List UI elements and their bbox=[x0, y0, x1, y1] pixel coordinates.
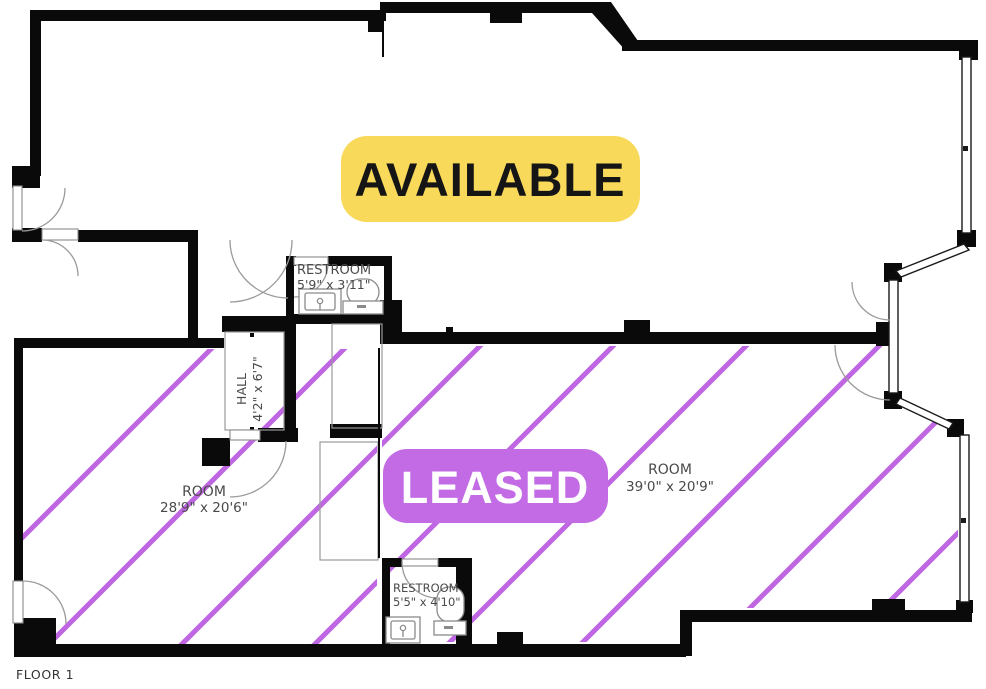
door-leaf bbox=[13, 186, 22, 230]
leased-badge: LEASED bbox=[383, 449, 608, 523]
door-opening bbox=[402, 559, 438, 566]
room-name: HALL bbox=[234, 373, 249, 405]
door-opening bbox=[230, 430, 260, 440]
floor-plan-page: RESTROOM 5'9" x 3'11" HALL 4'2" x 6'7" R… bbox=[0, 0, 986, 689]
window-diagonal-lower bbox=[896, 398, 953, 429]
floor-label: FLOOR 1 bbox=[16, 667, 74, 682]
room-name: RESTROOM bbox=[393, 581, 459, 595]
windows bbox=[889, 57, 971, 602]
door-swing-arc bbox=[23, 581, 66, 624]
door-swing-arc bbox=[42, 240, 78, 276]
window-diagonal-upper bbox=[896, 244, 969, 277]
available-badge: AVAILABLE bbox=[341, 136, 640, 222]
room-dimensions: 28'9" x 20'6" bbox=[160, 500, 248, 516]
leased-badge-label: LEASED bbox=[401, 462, 590, 513]
room-hall: HALL 4'2" x 6'7" bbox=[234, 356, 265, 422]
sink-icon bbox=[386, 617, 420, 643]
door-swing-arc bbox=[22, 188, 65, 231]
door-leaf bbox=[13, 581, 23, 623]
room-left: ROOM 28'9" x 20'6" bbox=[160, 484, 248, 516]
available-badge-label: AVAILABLE bbox=[355, 153, 626, 206]
door-swing-arc bbox=[230, 240, 288, 298]
room-dimensions: 39'0" x 20'9" bbox=[626, 479, 714, 495]
door-opening bbox=[42, 229, 78, 240]
room-dimensions: 5'9" x 3'11" bbox=[297, 277, 370, 292]
door-swing-arc bbox=[230, 441, 286, 497]
room-name: ROOM bbox=[182, 484, 226, 500]
walls bbox=[12, 2, 978, 657]
room-dimensions: 5'5" x 4'10" bbox=[393, 595, 461, 609]
room-name: RESTROOM bbox=[297, 263, 371, 278]
door-swing-arc bbox=[852, 282, 890, 320]
door-swing-arc bbox=[835, 345, 890, 400]
room-name: ROOM bbox=[648, 462, 692, 478]
floor-plan-canvas: RESTROOM 5'9" x 3'11" HALL 4'2" x 6'7" R… bbox=[0, 0, 986, 689]
room-right: ROOM 39'0" x 20'9" bbox=[626, 462, 714, 495]
room-dimensions: 4'2" x 6'7" bbox=[250, 356, 265, 422]
window-right-upper bbox=[962, 57, 971, 233]
room-restroom-lower: RESTROOM 5'5" x 4'10" bbox=[393, 581, 461, 609]
room-restroom-upper: RESTROOM 5'9" x 3'11" bbox=[297, 263, 371, 292]
door-frame-right bbox=[889, 280, 898, 393]
sink-icon bbox=[299, 289, 341, 314]
